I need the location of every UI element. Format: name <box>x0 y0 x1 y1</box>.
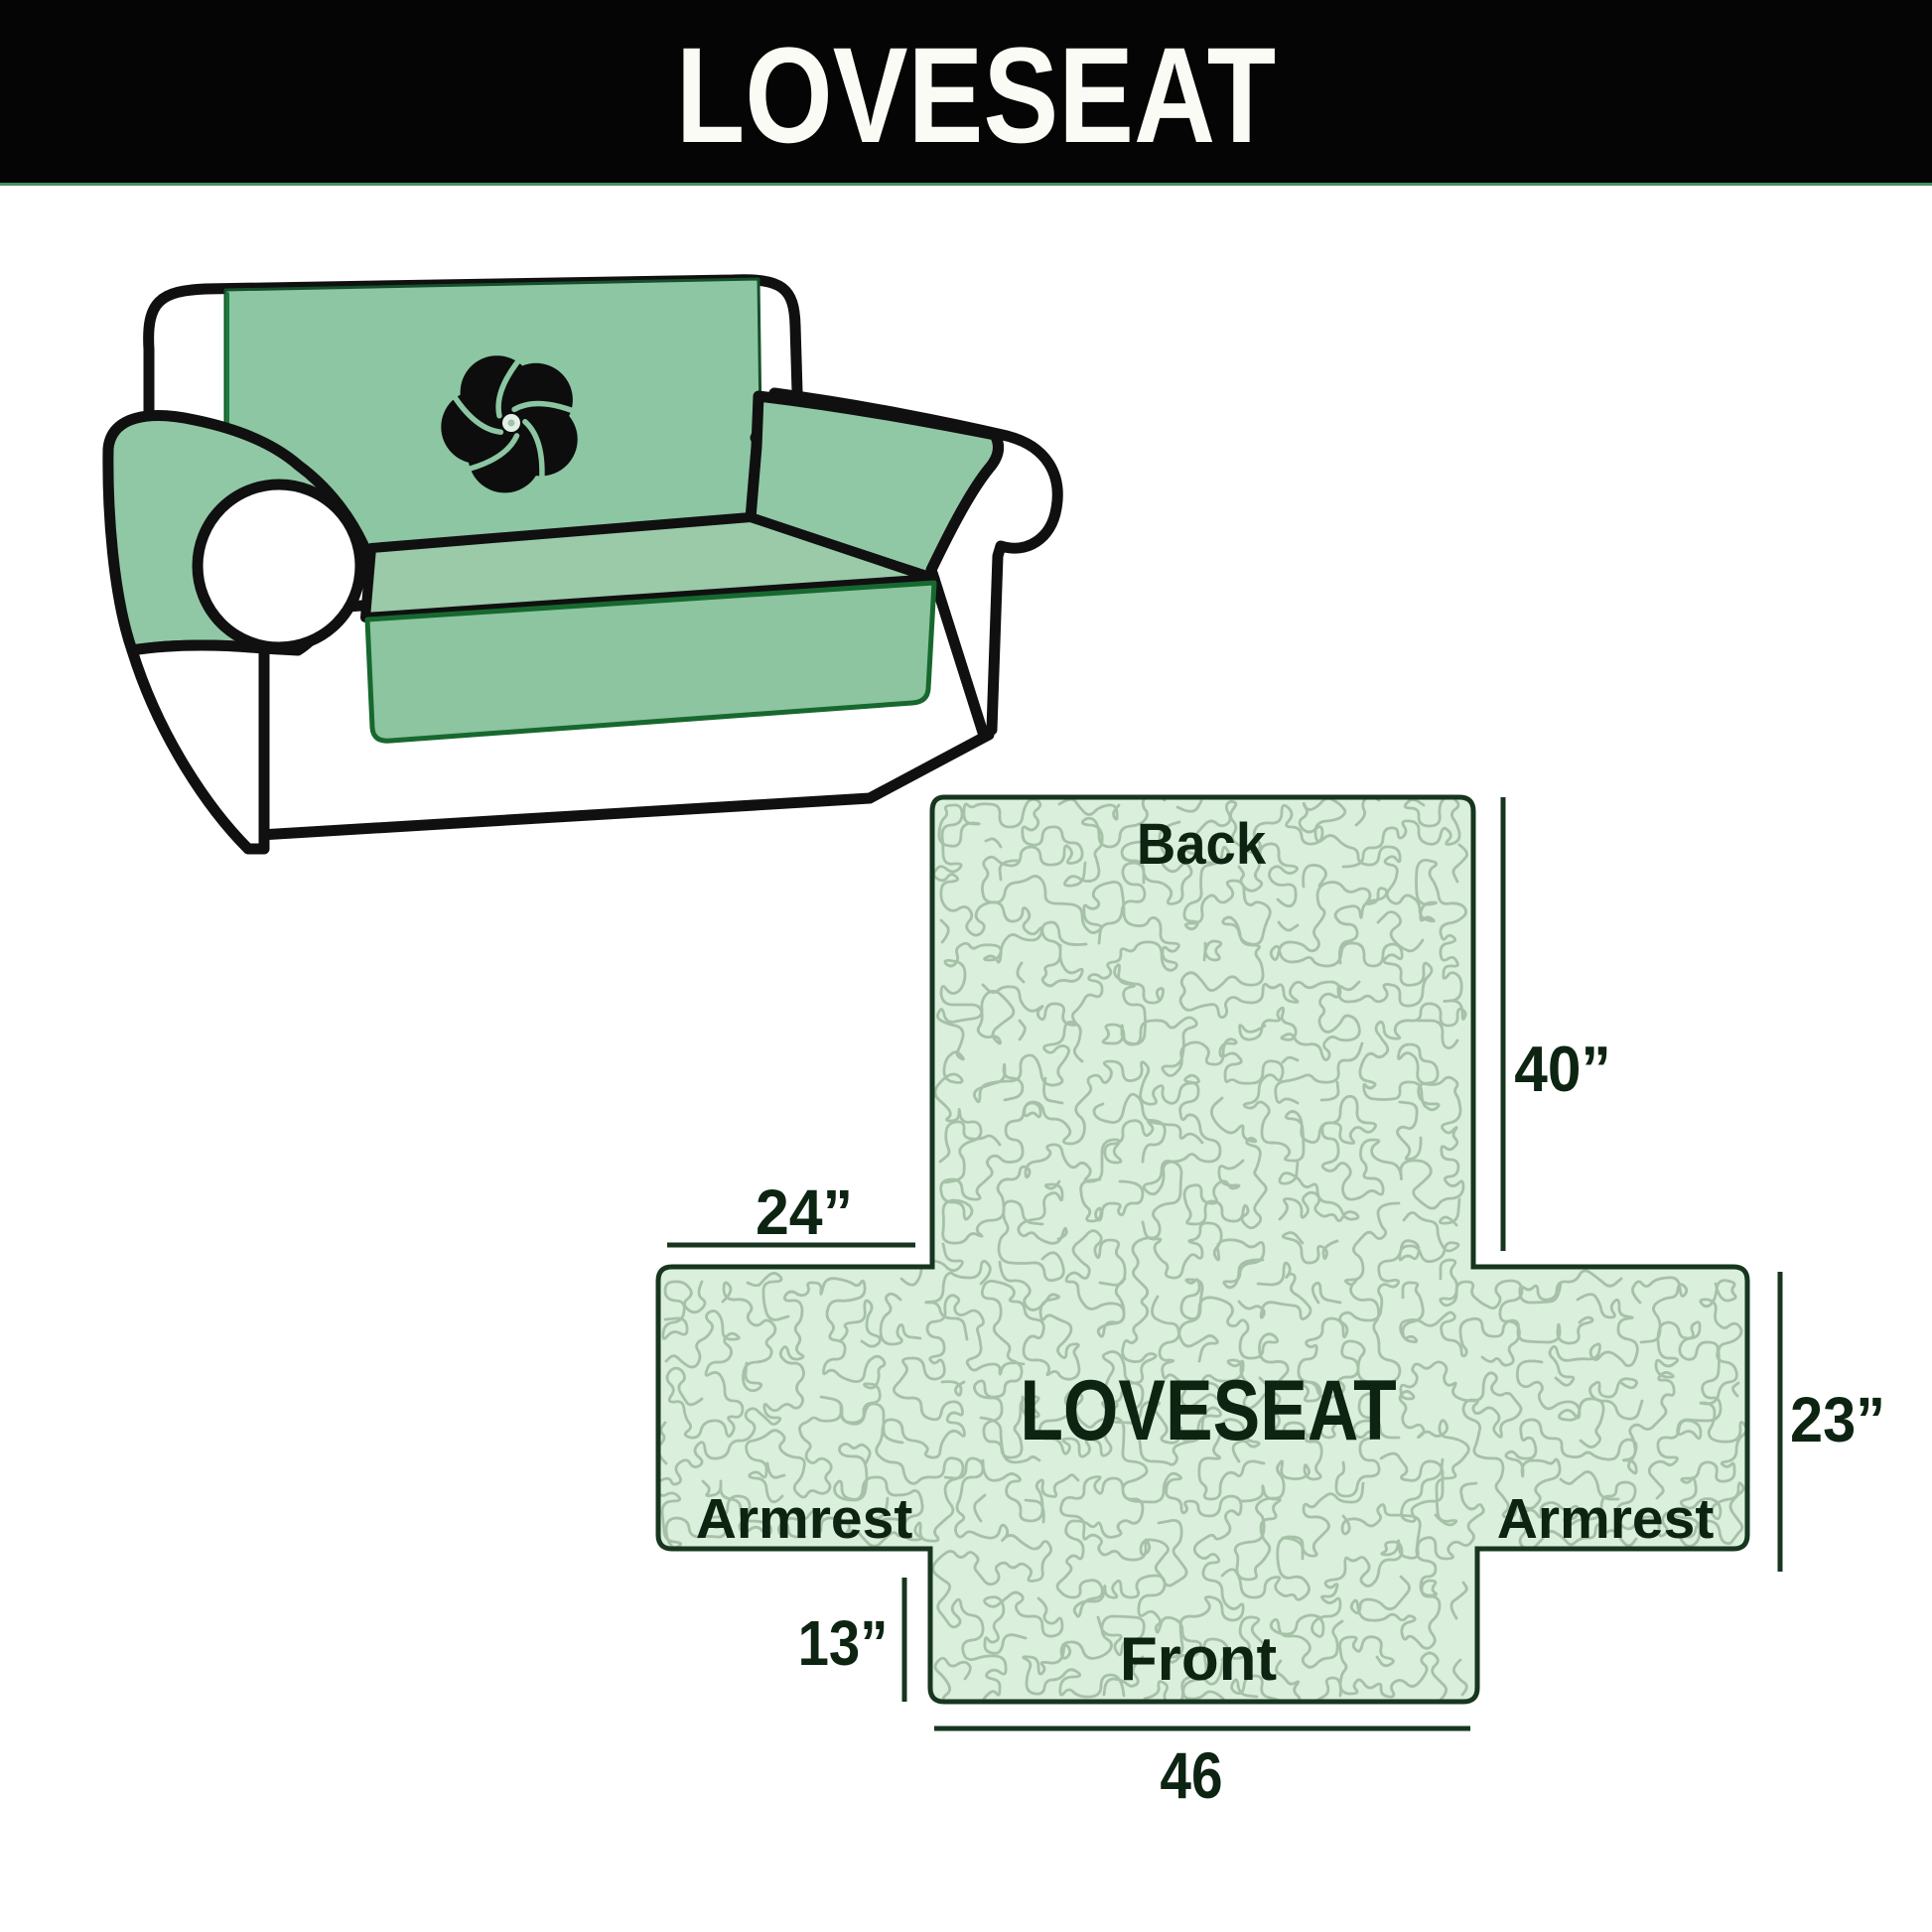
svg-text:Front: Front <box>1120 1625 1277 1694</box>
svg-text:Armrest: Armrest <box>1497 1487 1715 1551</box>
svg-text:23”: 23” <box>1790 1385 1885 1455</box>
svg-text:46: 46 <box>1160 1739 1222 1813</box>
svg-text:24”: 24” <box>756 1177 853 1249</box>
svg-text:Back: Back <box>1137 811 1267 876</box>
svg-text:LOVESEAT: LOVESEAT <box>1020 1362 1396 1458</box>
svg-text:LOVESEAT: LOVESEAT <box>676 19 1276 171</box>
svg-text:Armrest: Armrest <box>696 1487 913 1551</box>
svg-text:13”: 13” <box>798 1607 889 1679</box>
svg-text:40”: 40” <box>1514 1034 1610 1105</box>
